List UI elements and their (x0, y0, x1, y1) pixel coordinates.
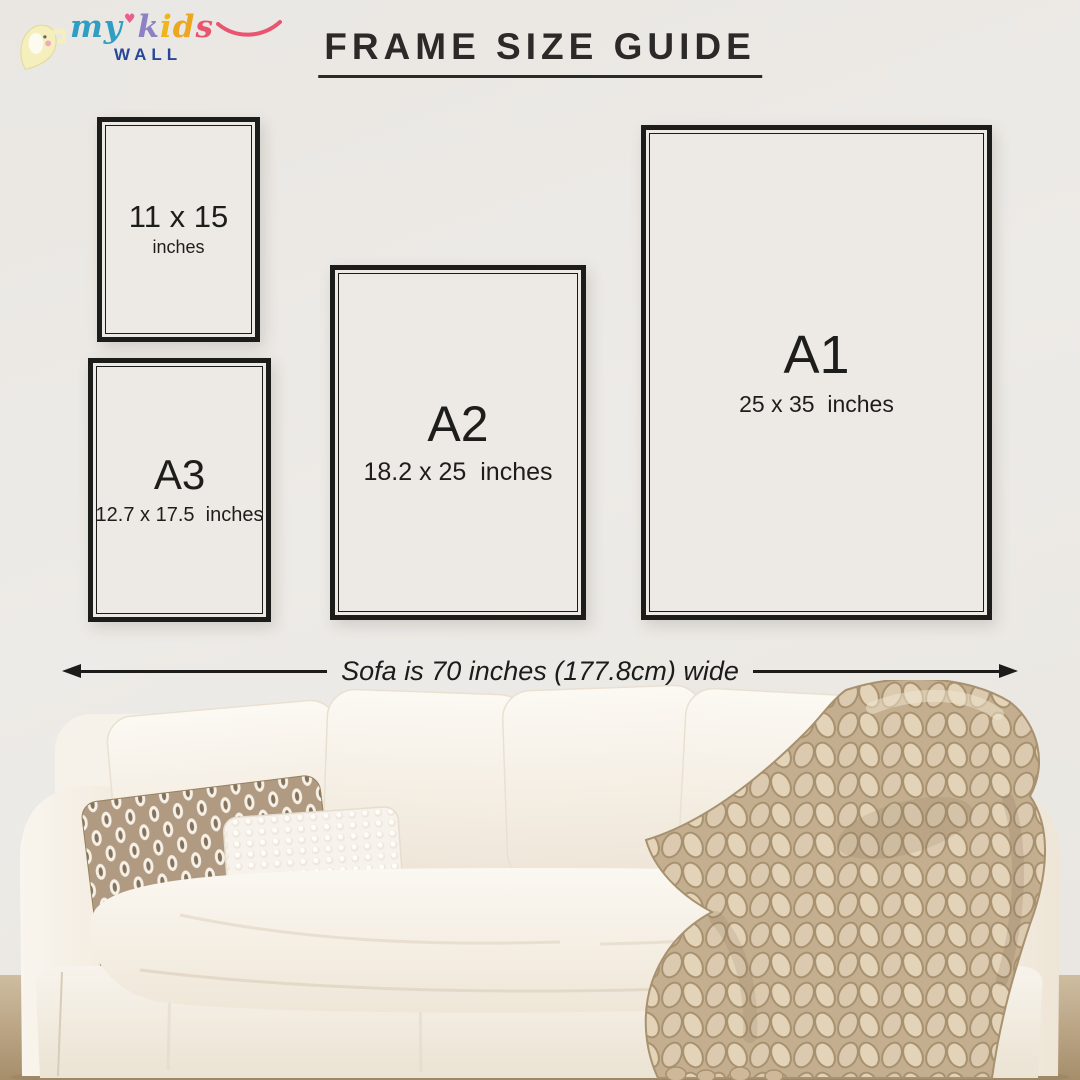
frame-box-a3: A3 12.7 x 17.5 inches (88, 358, 271, 622)
frame-size-label: A2 (427, 398, 488, 451)
brand-word-my: my (70, 9, 123, 45)
frame-size-label: 11 x 15 (129, 201, 228, 234)
frame-size-sublabel: 12.7 x 17.5 inches (96, 504, 264, 527)
frame-box-a2: A2 18.2 x 25 inches (330, 265, 586, 620)
brand-name-script: my♥kids (70, 12, 282, 43)
frame-size-sublabel: 25 x 35 inches (739, 391, 894, 418)
page-title: FRAME SIZE GUIDE (318, 26, 762, 78)
frame-size-sublabel: 18.2 x 25 inches (363, 458, 552, 487)
frame-size-sublabel: inches (152, 237, 204, 258)
frame-box-a1: A1 25 x 35 inches (641, 125, 992, 620)
elephant-logo-icon (14, 12, 66, 78)
dimension-line-right (753, 670, 1003, 673)
frame-size-guide-infographic: my♥kids WALL FRAME SIZE GUIDE 11 x 15 in… (0, 0, 1080, 1080)
arrowhead-right-icon (999, 664, 1018, 678)
brand-word-wall: WALL (114, 46, 282, 63)
frame-size-label: A1 (783, 327, 849, 384)
heart-icon: ♥ (124, 12, 137, 27)
frame-box-11x15: 11 x 15 inches (97, 117, 260, 342)
swash-icon (216, 19, 282, 41)
brand-logo: my♥kids WALL (14, 12, 282, 78)
dimension-line-left (77, 670, 327, 673)
sofa-photo-illustration (0, 680, 1080, 1080)
frame-size-label: A3 (154, 453, 205, 497)
